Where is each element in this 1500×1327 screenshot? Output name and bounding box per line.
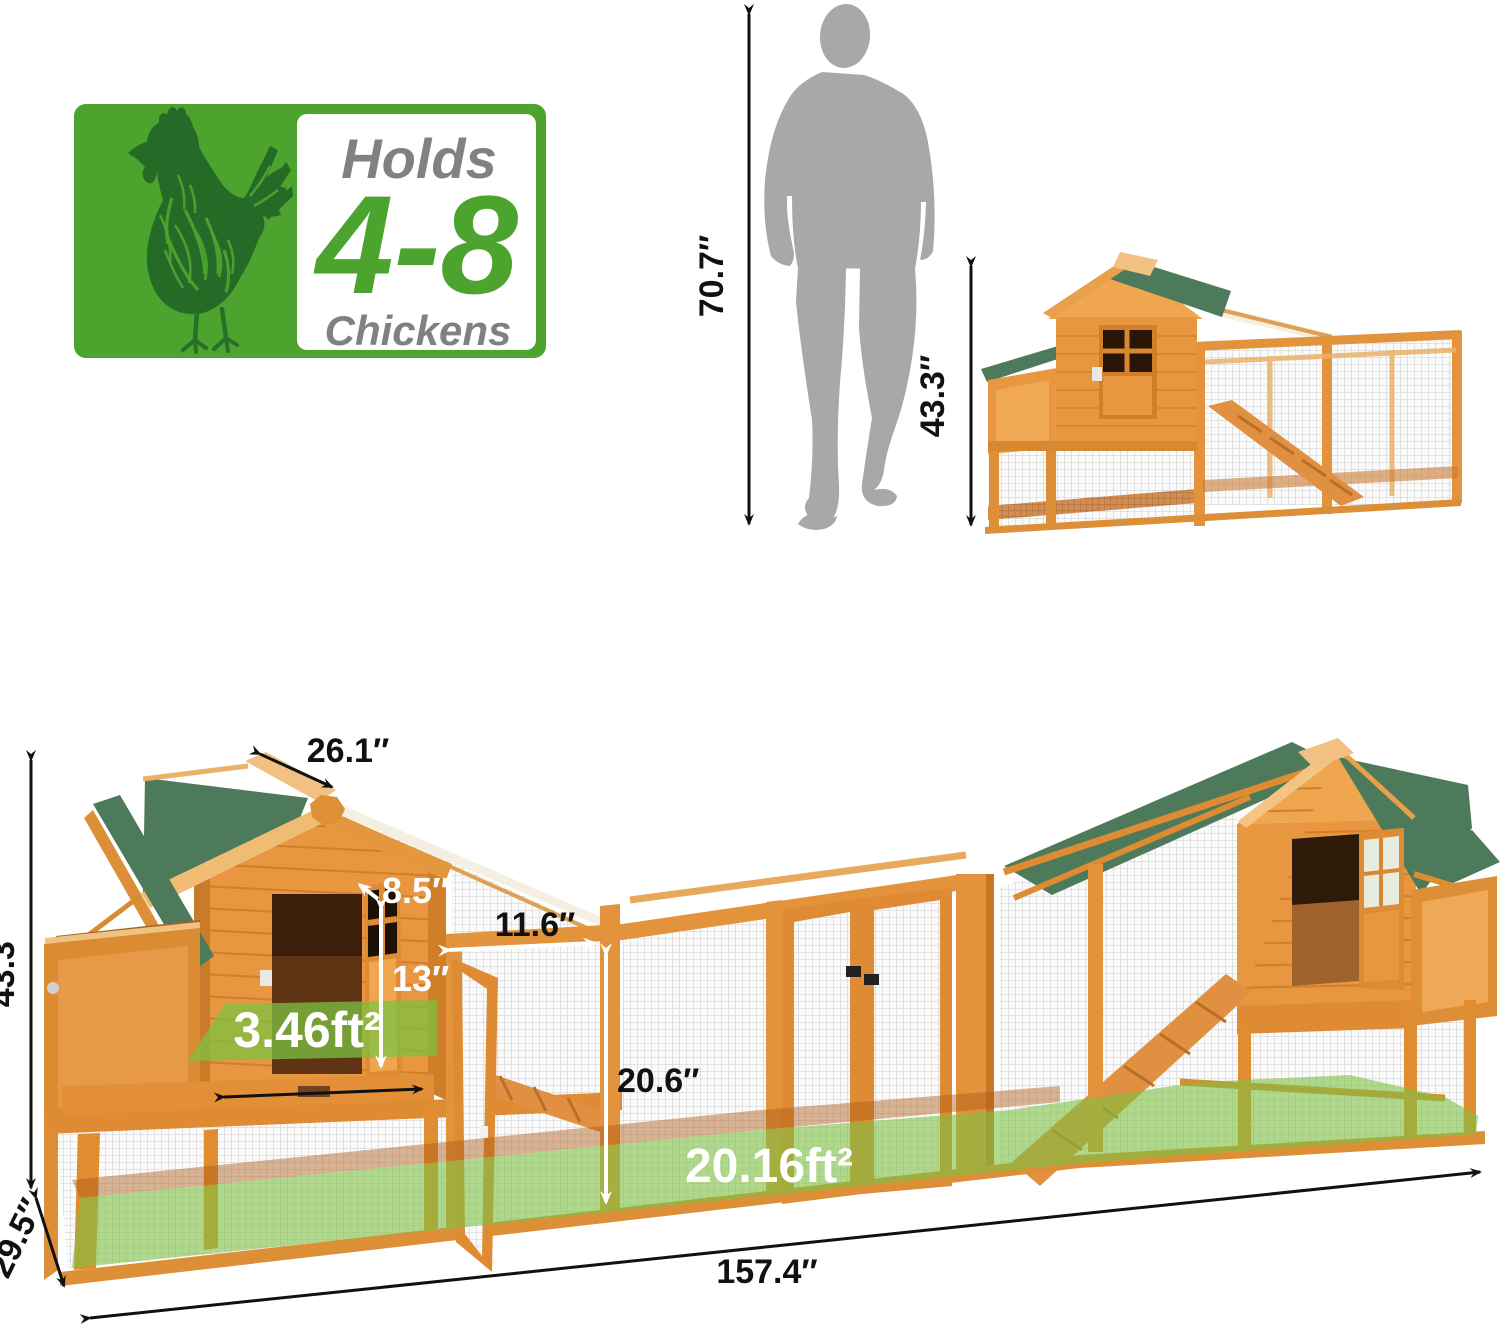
svg-text:20.6″: 20.6″ bbox=[617, 1062, 699, 1100]
svg-text:43.3″: 43.3″ bbox=[0, 925, 22, 1007]
svg-text:43.3″: 43.3″ bbox=[914, 355, 952, 437]
svg-text:8.5″: 8.5″ bbox=[382, 870, 449, 911]
svg-text:26.1″: 26.1″ bbox=[307, 732, 389, 770]
svg-text:Chickens: Chickens bbox=[325, 307, 512, 354]
svg-text:13″: 13″ bbox=[392, 958, 449, 999]
svg-text:70.7″: 70.7″ bbox=[693, 235, 731, 317]
svg-text:157.4″: 157.4″ bbox=[716, 1253, 817, 1291]
svg-text:11.6″: 11.6″ bbox=[495, 906, 576, 944]
svg-text:29.5″: 29.5″ bbox=[0, 1193, 51, 1284]
svg-text:3.46ft²: 3.46ft² bbox=[233, 1002, 380, 1058]
svg-text:4-8: 4-8 bbox=[313, 166, 518, 323]
svg-text:20.16ft²: 20.16ft² bbox=[685, 1140, 853, 1193]
